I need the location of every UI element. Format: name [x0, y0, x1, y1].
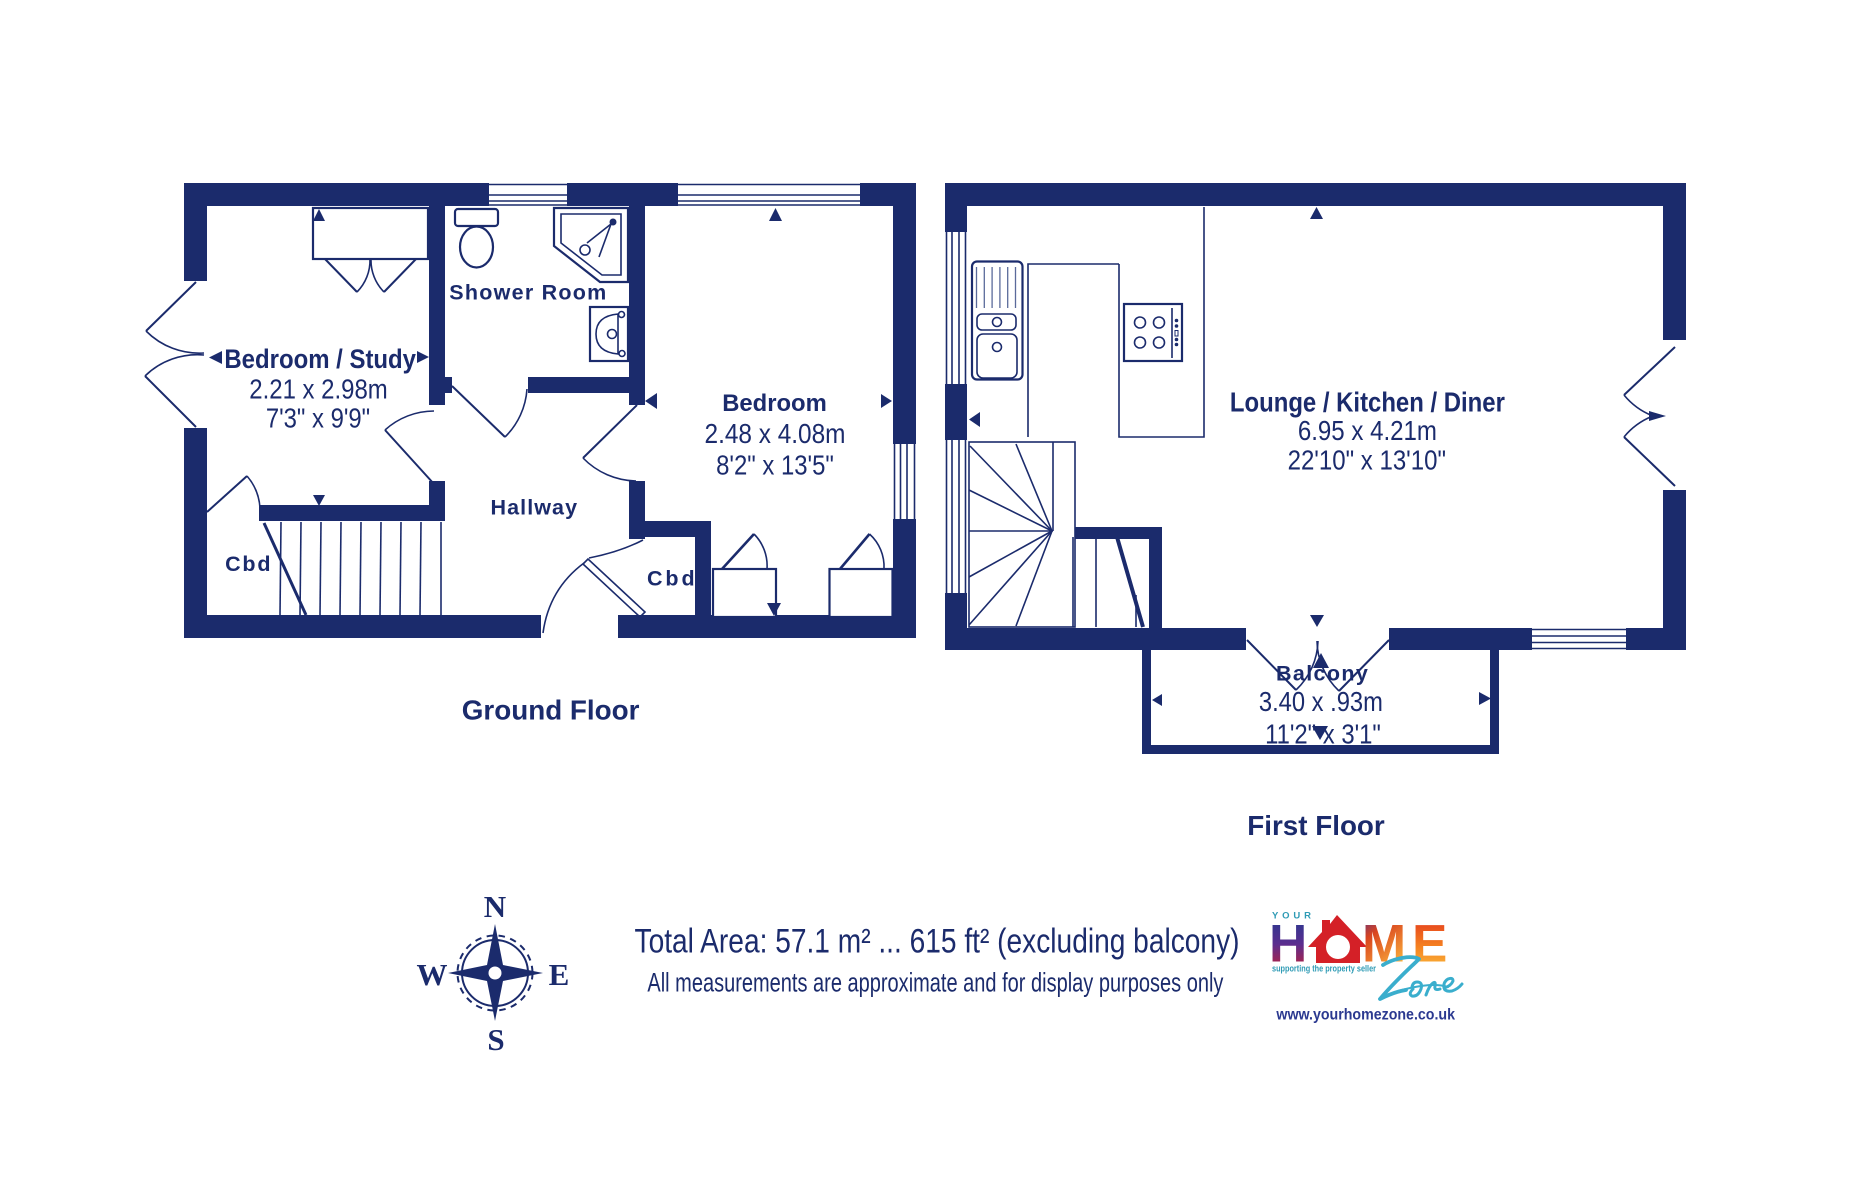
svg-text:E: E [549, 957, 570, 992]
svg-text:Shower Room: Shower Room [449, 281, 606, 305]
svg-text:Lounge / Kitchen / Diner: Lounge / Kitchen / Diner [1230, 387, 1505, 418]
svg-text:6.95 x 4.21m: 6.95 x 4.21m [1298, 415, 1437, 446]
svg-text:3.40 x .93m: 3.40 x .93m [1259, 686, 1383, 717]
svg-text:Bedroom / Study: Bedroom / Study [224, 344, 416, 374]
svg-text:S: S [487, 1022, 504, 1057]
svg-text:First Floor: First Floor [1247, 810, 1385, 841]
svg-text:N: N [484, 889, 506, 924]
svg-text:E: E [1412, 915, 1447, 974]
svg-text:11'2" x 3'1": 11'2" x 3'1" [1265, 719, 1381, 750]
svg-text:Hallway: Hallway [491, 496, 578, 520]
svg-text:W: W [417, 957, 448, 992]
svg-text:supporting the property seller: supporting the property seller [1272, 964, 1376, 974]
svg-text:Cbd: Cbd [647, 567, 695, 591]
svg-text:7'3" x 9'9": 7'3" x 9'9" [266, 402, 370, 433]
svg-text:Ground Floor: Ground Floor [462, 695, 640, 726]
svg-text:22'10" x 13'10": 22'10" x 13'10" [1288, 445, 1446, 476]
svg-text:Cbd: Cbd [225, 552, 270, 576]
svg-text:All measurements are approxima: All measurements are approximate and for… [647, 968, 1223, 998]
svg-text:Balcony: Balcony [1276, 661, 1368, 685]
svg-text:8'2" x 13'5": 8'2" x 13'5" [716, 450, 834, 481]
svg-text:Total Area: 57.1 m² ... 615 ft: Total Area: 57.1 m² ... 615 ft² (excludi… [635, 923, 1240, 961]
svg-text:www.yourhomezone.co.uk: www.yourhomezone.co.uk [1276, 1006, 1456, 1023]
svg-text:2.21 x 2.98m: 2.21 x 2.98m [249, 374, 387, 405]
svg-text:2.48 x 4.08m: 2.48 x 4.08m [705, 418, 846, 449]
svg-text:Bedroom: Bedroom [722, 390, 827, 417]
